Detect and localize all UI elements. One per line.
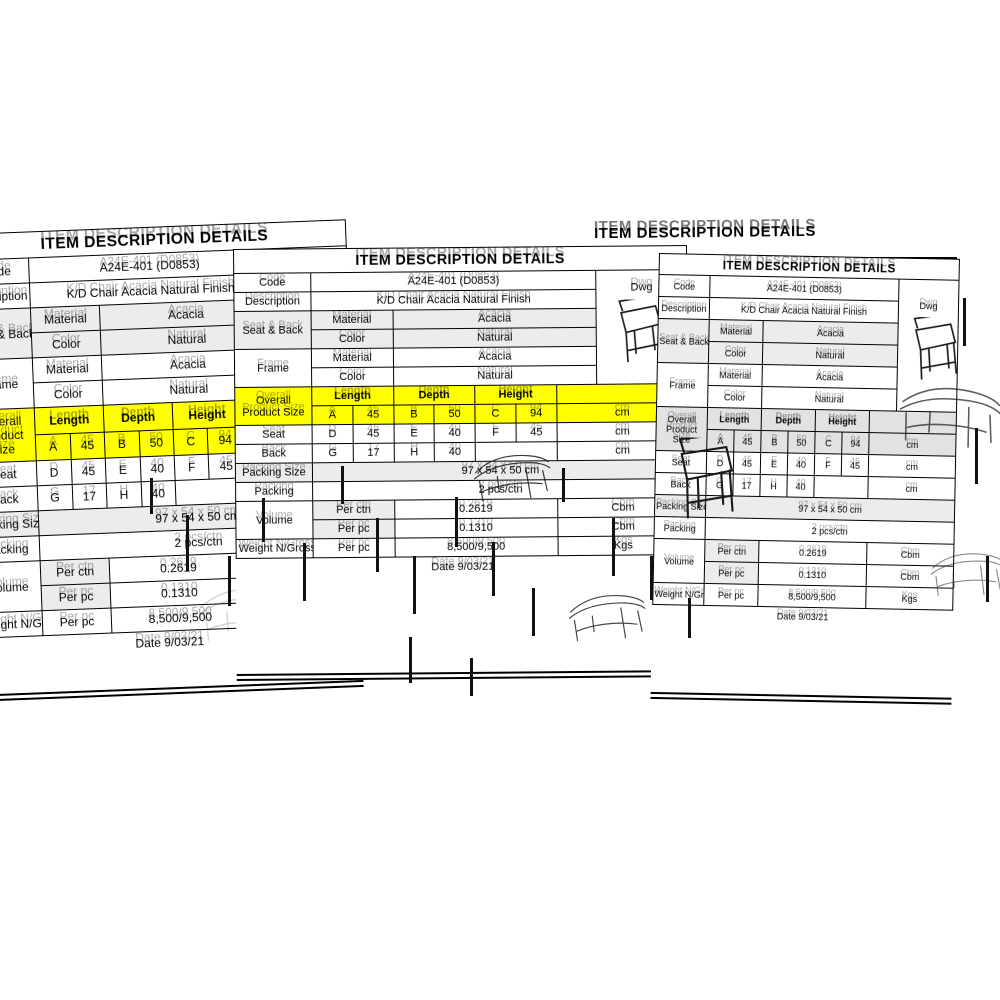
line-fragment [470,658,473,696]
line-fragment [186,515,189,571]
dim-letter-h: H [106,482,141,508]
description-value: K/D Chair Acacia Natural Finish [311,289,597,310]
depth-header: Depth [761,408,815,431]
overall-size-label: Overall Product Size [235,387,312,426]
back-label: Back [235,444,312,464]
material-label: Material [311,310,393,330]
seat-back-label: Seat & Back [0,308,32,360]
dim-value-a: 45 [353,405,394,424]
volume-r1-value: 0.2619 [759,540,867,564]
volume-r1-name: Per ctn [705,539,759,562]
color-label: Color [311,329,393,349]
dim-letter-c: C [173,428,208,456]
material-label: Material [709,319,763,342]
volume-r2-value: 0.1310 [394,518,557,538]
weight-label: Weight N/Gross [0,611,43,638]
dim-value-f: 45 [841,454,868,477]
material-label: Material [708,363,762,386]
dim-value-e: 40 [140,456,175,482]
spec-table: Code A24E-401 (D0853) Dwg Description K/… [233,269,689,559]
seat-back-material-value: Acacia [393,308,597,329]
line-fragment [650,556,653,600]
dim-letter-e: E [105,457,140,483]
packing-label: Packing [236,482,313,502]
height-header: Height [475,385,557,405]
overall-size-label: Overall Product Size [0,408,36,463]
scan-stage: ITEM DESCRIPTION DETAILS Code A24E-401 (… [0,0,1000,1000]
frame-material-value: Acacia [762,365,897,390]
dim-value-e: 40 [787,453,814,476]
volume-label: Volume [0,561,42,613]
volume-r2-name: Per pc [313,519,395,539]
dim-letter-f: F [814,454,841,477]
weight-value: 8,500/9,500 [395,537,558,557]
line-fragment [409,637,412,683]
volume-r2-value: 0.1310 [758,562,866,586]
code-value: A24E-401 (D0853) [311,270,597,291]
dim-value-a: 45 [70,432,105,460]
seat-label: Seat [0,461,37,488]
dim-letter-d: D [312,424,353,443]
dim-letter-c: C [815,432,842,455]
description-label: Description [234,292,311,312]
height-header: Height [815,410,869,433]
color-label: Color [708,385,762,408]
material-label: Material [311,348,393,368]
code-label: Code [234,273,311,293]
seat-back-color-value: Natural [393,327,597,348]
dim-value-c: 94 [516,404,557,423]
frame-label: Frame [657,362,709,407]
line-fragment [228,556,231,606]
dim-value-f: 45 [516,423,557,442]
frame-label: Frame [234,349,311,388]
dim-value-h: 40 [141,481,176,507]
volume-r1-name: Per ctn [313,500,395,520]
seat-label: Seat [235,425,312,445]
dim-letter-c: C [475,404,516,423]
description-label: Description [658,297,709,320]
dim-value-c: 94 [842,432,869,455]
dim-letter-a: A [312,405,353,424]
size-unit: cm [868,477,955,501]
dim-letter-b: B [104,430,139,458]
length-header: Length [707,407,761,430]
weight-label: Weight N/Gross [236,539,313,559]
code-label: Code [0,258,30,285]
dim-letter-e: E [394,424,435,443]
line-fragment [963,298,966,346]
line-fragment [341,466,344,504]
line-fragment [688,598,691,638]
dim-letter-f: F [475,423,516,442]
volume-row-1: Volume Per ctn 0.2619 Cbm [654,538,954,566]
frame-label: Frame [0,358,34,410]
color-label: Color [33,380,103,408]
color-label: Color [31,330,101,358]
frame-color-value: Natural [393,365,597,386]
volume-label: Volume [653,538,705,583]
line-fragment [455,497,458,547]
dim-value-g: 17 [353,443,394,462]
date-text: Date 9/03/21 [431,561,494,574]
dim-letter-g: G [312,443,353,462]
ghost-title: ITEM DESCRIPTION DETAILS [535,222,875,243]
line-fragment [492,542,495,596]
dim-value-h: 40 [787,475,814,498]
chair-sketch-fragment [407,443,620,514]
line-fragment [532,588,535,636]
dim-letter-g: G [37,484,72,510]
dim-value-g: 17 [72,483,107,509]
chair-sketch-fragment [928,545,1000,605]
seat-back-label: Seat & Back [657,318,709,363]
dim-value-b: 50 [434,404,475,423]
depth-header: Depth [393,385,475,405]
weight-value: 8,500/9,500 [758,584,866,608]
line-fragment [376,518,379,572]
seat-back-label: Seat & Back [234,311,311,350]
line-fragment [303,543,306,601]
material-label: Material [32,355,102,383]
dim-letter-f: F [174,454,209,480]
color-label: Color [708,341,762,364]
dim-value-b: 50 [788,431,815,454]
dim-letter-b: B [393,405,434,424]
dim-letter-a: A [35,433,70,461]
material-label: Material [30,305,100,333]
depth-header: Depth [103,403,173,432]
line-fragment [262,498,265,542]
seat-back-material-value: Acacia [763,321,898,346]
packing-label: Packing [0,536,40,563]
volume-label: Volume [236,501,313,540]
chair-sketch-fragment [630,435,783,535]
height-header: Height [172,400,242,429]
dim-value-e: 40 [434,423,475,442]
dwg-label: Dwg [900,298,957,311]
line-fragment [562,468,565,502]
packing-size-label: Packing Size [235,463,312,483]
frame-material-value: Acacia [393,346,597,367]
back-label: Back [0,486,38,513]
dim-letter-d: D [36,459,71,485]
line-fragment [150,478,153,514]
weight-name: Per pc [704,583,758,606]
weight-name: Per pc [313,538,395,558]
packing-size-label: Packing Size [0,511,39,538]
dim-value-d: 45 [353,424,394,443]
line-fragment [612,518,615,576]
seat-back-color-value: Natural [762,343,897,368]
length-header: Length [34,405,104,434]
dim-value-b: 50 [139,429,174,457]
chair-sketch-fragment [890,368,1000,467]
dim-value-d: 45 [71,458,106,484]
date-text: Date 9/03/21 [777,611,829,622]
code-label: Code [659,275,710,298]
volume-r2-name: Per pc [704,561,758,584]
color-label: Color [312,367,394,387]
back-size-spacer [814,476,868,499]
length-header: Length [312,386,394,406]
code-row: Code A24E-401 (D0853) Dwg [234,270,687,293]
line-fragment [413,556,416,614]
frame-color-value: Natural [762,387,897,412]
description-label: Description [0,283,30,310]
